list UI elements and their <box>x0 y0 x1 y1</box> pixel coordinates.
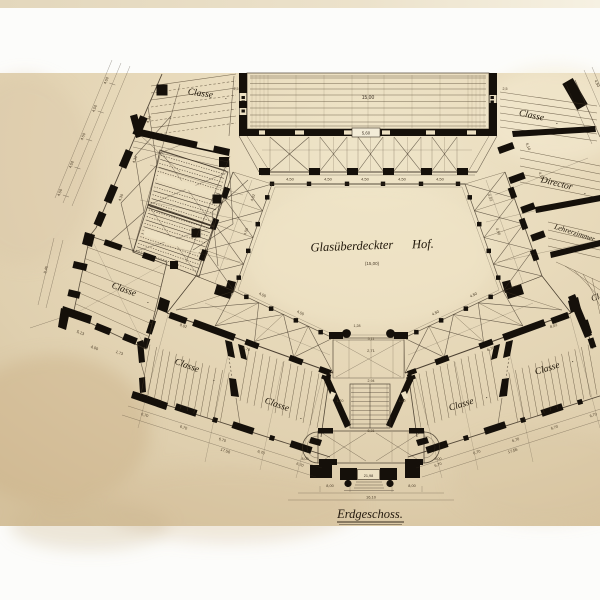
svg-text:5,11: 5,11 <box>368 337 375 341</box>
svg-text:1,28: 1,28 <box>354 324 361 328</box>
svg-text:2,5: 2,5 <box>234 87 239 91</box>
svg-text:Erdgeschoss.: Erdgeschoss. <box>336 507 403 521</box>
svg-text:8,31: 8,31 <box>368 429 375 433</box>
svg-text:4,50: 4,50 <box>286 177 295 182</box>
svg-text:2,5: 2,5 <box>503 87 508 91</box>
svg-text:(15,00): (15,00) <box>365 261 380 266</box>
svg-text:8,00: 8,00 <box>326 484 333 488</box>
svg-text:16,10: 16,10 <box>366 495 377 500</box>
svg-text:8,00: 8,00 <box>408 484 415 488</box>
svg-text:8,00: 8,00 <box>302 457 309 461</box>
svg-text:4,50: 4,50 <box>324 177 333 182</box>
svg-text:8,00: 8,00 <box>435 457 442 461</box>
svg-text:Glasüberdeckter: Glasüberdeckter <box>310 238 393 255</box>
svg-text:1,20: 1,20 <box>337 399 344 403</box>
svg-text:2,71: 2,71 <box>367 348 376 353</box>
svg-text:21,98: 21,98 <box>364 474 374 478</box>
svg-text:4,50: 4,50 <box>436 177 445 182</box>
svg-text:4,50: 4,50 <box>398 177 407 182</box>
svg-text:2,94: 2,94 <box>368 379 375 383</box>
svg-text:15,00: 15,00 <box>362 95 375 101</box>
svg-text:1,20: 1,20 <box>399 399 406 403</box>
svg-text:Hof.: Hof. <box>411 237 434 252</box>
svg-text:4,50: 4,50 <box>361 177 370 182</box>
svg-text:5,60: 5,60 <box>362 131 371 136</box>
